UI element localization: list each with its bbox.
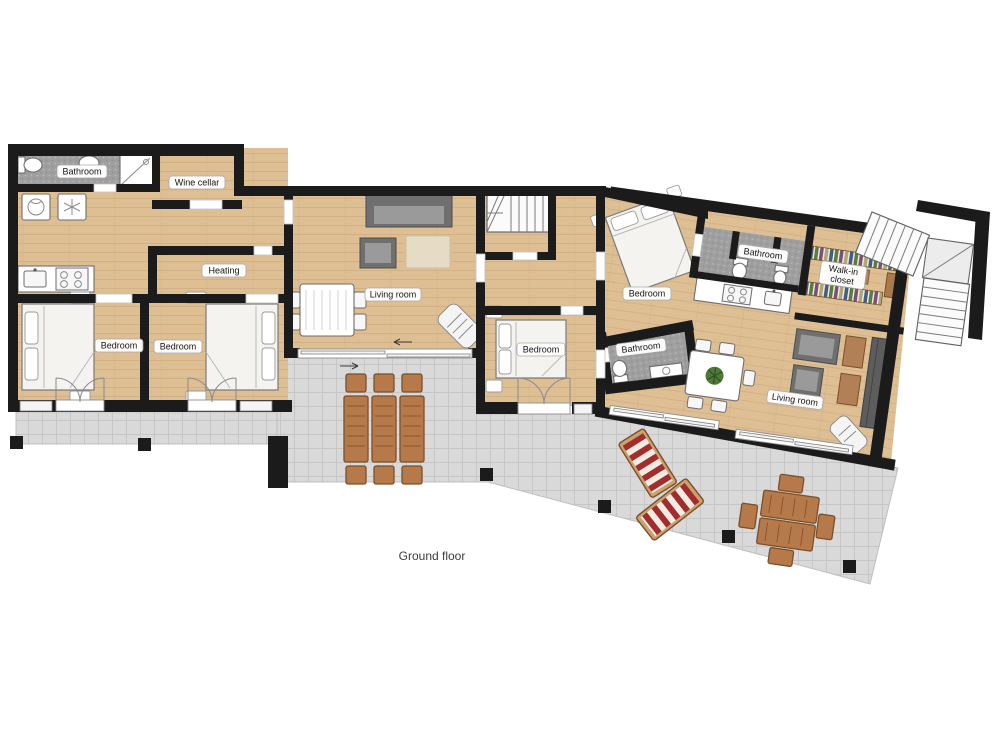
sofa	[793, 329, 841, 365]
svg-text:Bedroom: Bedroom	[523, 345, 560, 355]
toilet-icon	[18, 157, 42, 173]
svg-text:Heating: Heating	[208, 266, 239, 276]
washing-machine-icon	[22, 194, 50, 220]
window	[20, 401, 52, 411]
room-label: Bedroom	[95, 339, 143, 352]
staircase	[487, 194, 551, 232]
floor-caption: Ground floor	[399, 549, 466, 563]
floor-plan: Bathroom Walk-in closet Living room	[0, 0, 1000, 750]
armchair	[790, 365, 824, 397]
rug	[406, 236, 450, 268]
armchair-wood	[842, 336, 866, 368]
svg-text:Bathroom: Bathroom	[62, 167, 101, 177]
room-label: Bedroom	[623, 287, 671, 300]
room-label: Heating	[202, 264, 246, 277]
room-label: Bathroom	[57, 165, 107, 178]
room-label: Living room	[365, 288, 421, 301]
boiler-icon	[58, 194, 86, 220]
window	[574, 404, 592, 414]
svg-text:Bedroom: Bedroom	[629, 289, 666, 299]
sofa	[366, 193, 452, 227]
floor-plan-page: Bathroom Walk-in closet Living room	[0, 0, 1000, 750]
svg-text:Bedroom: Bedroom	[160, 342, 197, 352]
sliding-door	[298, 349, 472, 358]
svg-text:Bedroom: Bedroom	[101, 341, 138, 351]
room-label: Bedroom	[154, 340, 202, 353]
armchair	[360, 238, 396, 268]
svg-text:Living room: Living room	[370, 290, 417, 300]
kitchen-left	[18, 266, 94, 292]
bed	[22, 292, 94, 401]
armchair-wood	[837, 373, 861, 405]
room-label: Wine cellar	[169, 176, 225, 189]
window	[240, 401, 272, 411]
dining-table	[288, 284, 366, 336]
svg-text:Wine cellar: Wine cellar	[175, 178, 220, 188]
shower-icon	[120, 155, 153, 186]
room-label: Bedroom	[517, 343, 565, 356]
picnic-table-set	[344, 374, 424, 484]
